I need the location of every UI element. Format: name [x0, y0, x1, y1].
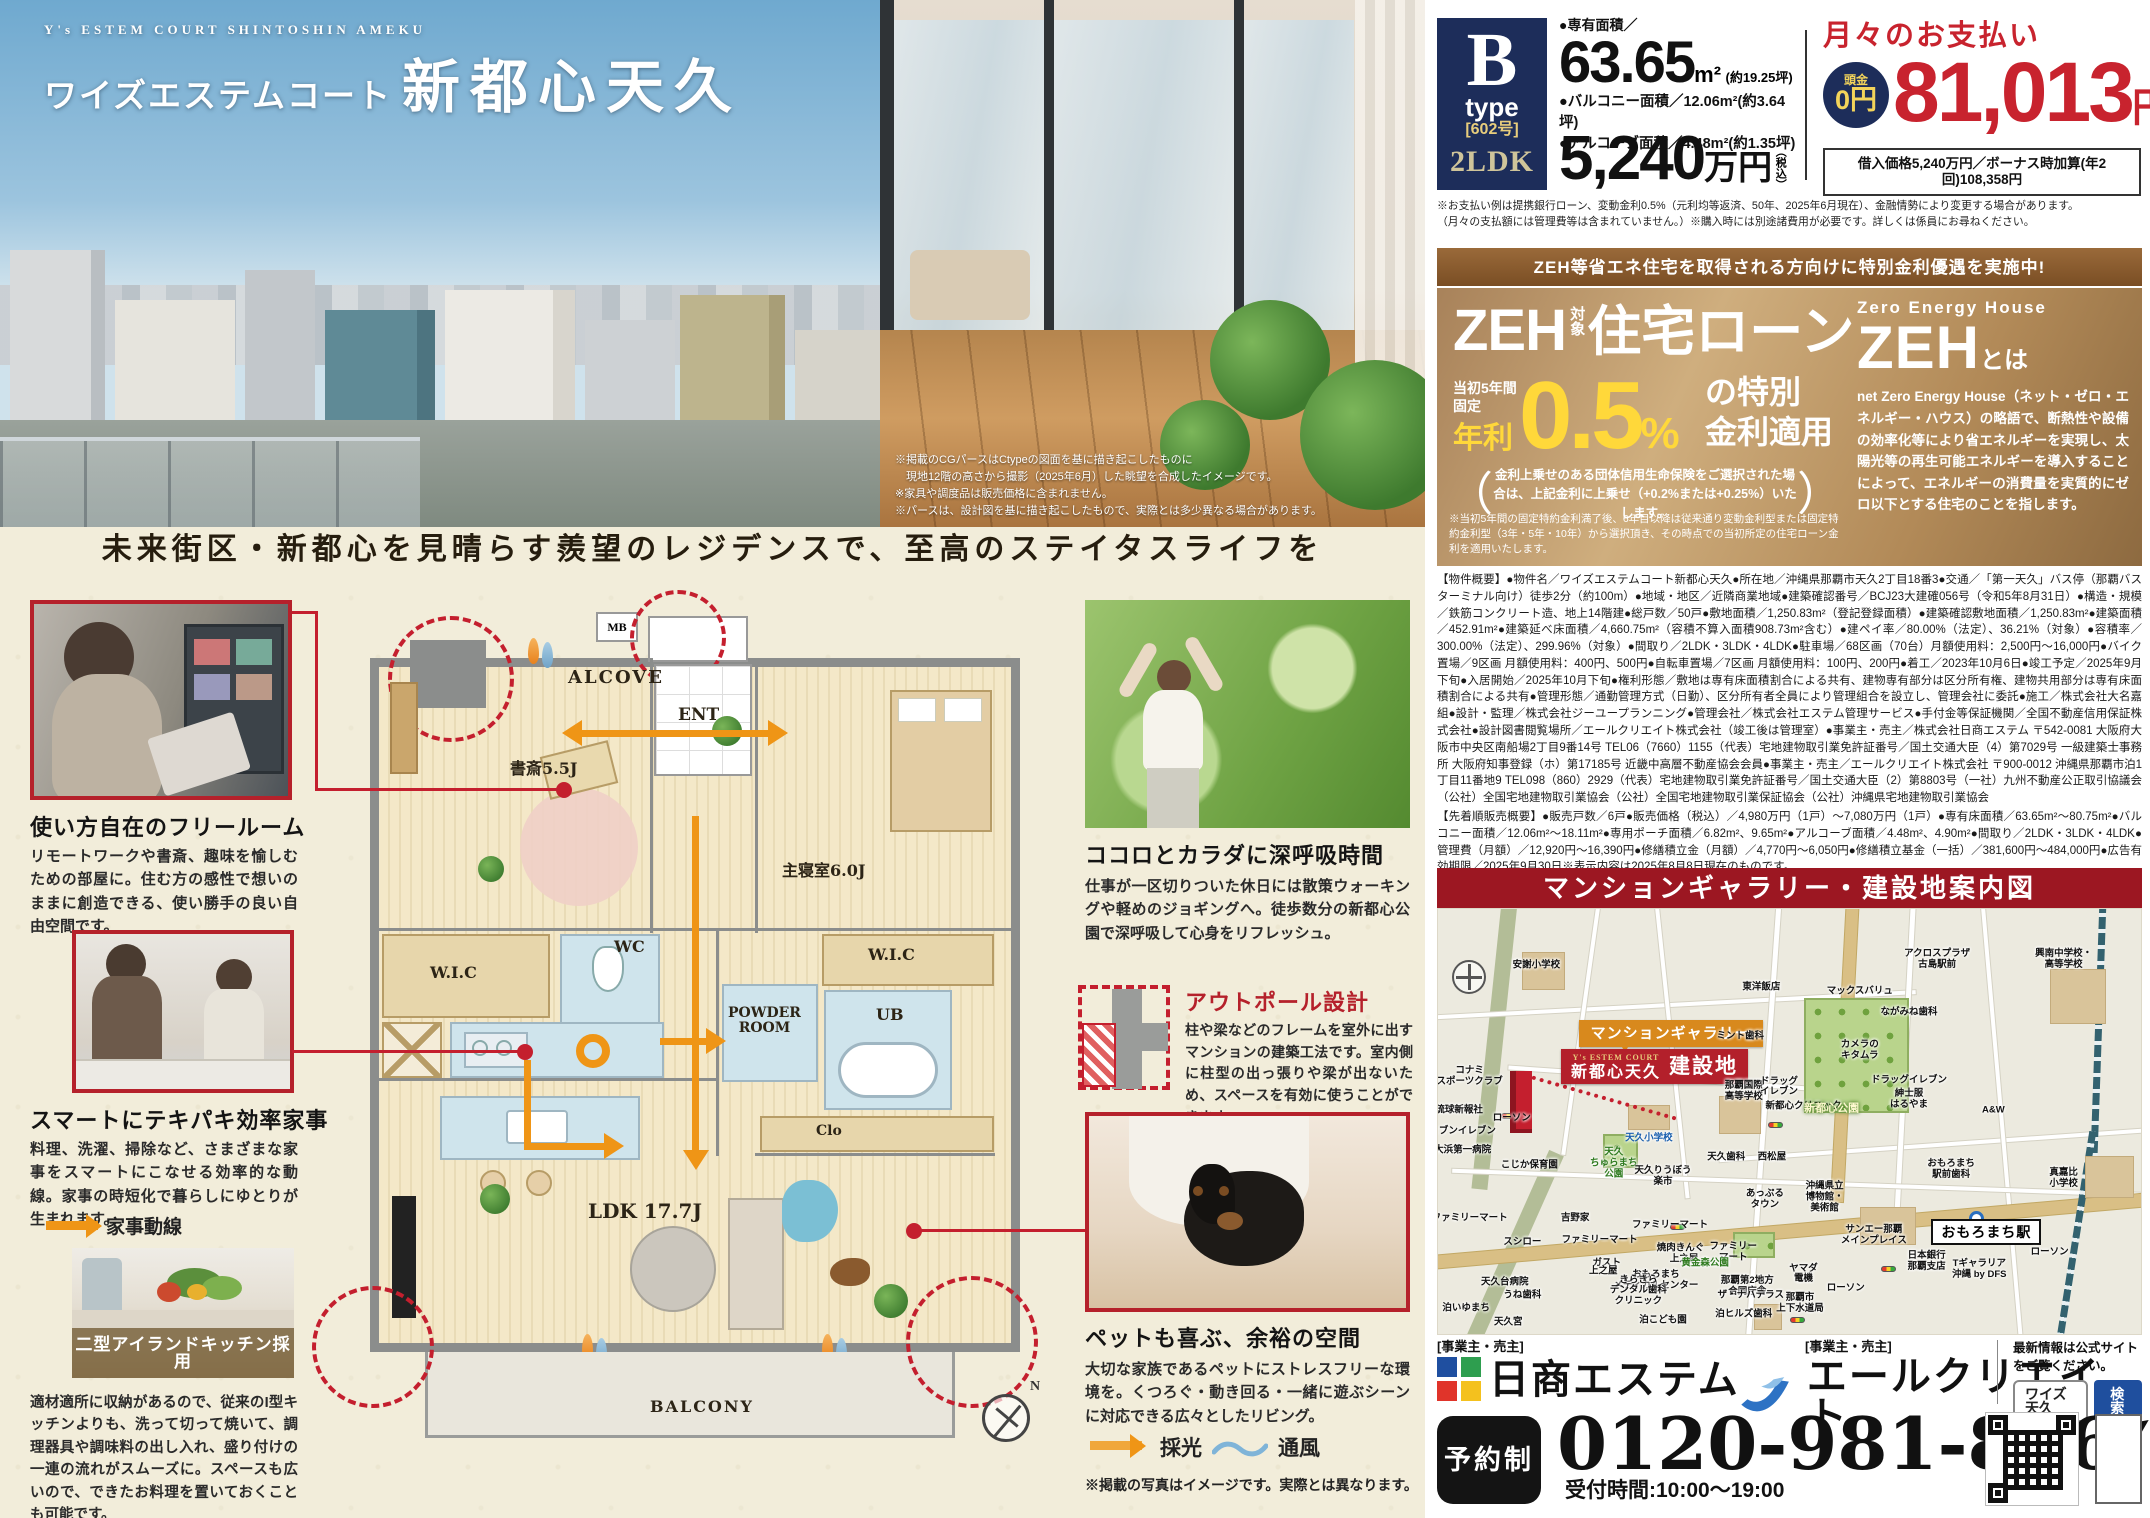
- kitchen-caption: 二型アイランドキッチン採用: [72, 1328, 294, 1378]
- company1-role: [事業主・売主]: [1437, 1340, 1740, 1353]
- blank-box: [2095, 1414, 2142, 1504]
- footer-companies: [事業主・売主] 日商エステム [事業主・売主] エールクリエイト 最新情報は公…: [1437, 1340, 2142, 1406]
- map-poi-label: 沖縄県立 博物館・ 美術館: [1806, 1182, 1844, 1215]
- feature-body-freeroom: リモートワークや書斎、趣味を愉しむための部屋に。住む方の感性で想いのままに創造で…: [30, 845, 298, 938]
- zeh-fixed-label: 当初5年間固定: [1453, 380, 1517, 415]
- map-poi-label: スシロー: [1503, 1237, 1541, 1248]
- map-poi-label: ながみね歯科: [1880, 1008, 1937, 1019]
- map-poi-label: 大浜第一病院: [1437, 1146, 1491, 1157]
- omoromachi-station-label: おもろまち駅: [1931, 1219, 2041, 1245]
- map-poi-label: Tギャラリア 沖縄 by DFS: [1952, 1259, 2006, 1281]
- wic-left-label: W.I.C: [430, 964, 477, 982]
- official-site-note: 最新情報は公式サイトをご覧ください。: [2013, 1340, 2143, 1375]
- map-poi-label: きらきら デンタル歯科 クリニック: [1610, 1275, 1667, 1308]
- type-badge: B type [602号] 2LDK: [1437, 18, 1547, 190]
- hero-photo: Y's ESTEM COURT SHINTOSHIN AMEKU ワイズエステム…: [0, 0, 1425, 527]
- map-poi-label: 琉球新報社: [1437, 1105, 1483, 1116]
- monthly-payment-block: 月々のお支払い 頭金 0円 81,013円: [1823, 22, 2138, 51]
- map-poi-label: ファミリーマート: [1632, 1220, 1708, 1231]
- kaji-legend-label: 家事動線: [106, 1217, 182, 1238]
- area-value: 63.65: [1559, 30, 1694, 95]
- light-legend-label: 採光: [1160, 1438, 1202, 1459]
- loan-note: 借入価格5,240万円／ボーナス時加算(年2回)108,358円: [1823, 148, 2141, 196]
- overview-paragraph-2: 【先着順販売概要】●販売戸数／6戸●販売価格（税込）／4,980万円（1戸）～7…: [1437, 809, 2142, 876]
- map-poi-label: 那覇国際 高等学校: [1725, 1081, 1763, 1103]
- wind-wave-icon: [1212, 1440, 1268, 1458]
- map-poi-label: マックスバリュ: [1827, 986, 1893, 997]
- map-poi-label: 天久小学校: [1625, 1133, 1673, 1144]
- map-poi-label: 泊いゆまち: [1442, 1303, 1490, 1314]
- zeh-right-title: ZEH: [1857, 314, 1980, 381]
- property-overview: 【物件概要】●物件名／ワイズエステムコート新都心天久●所在地／沖縄県那覇市天久2…: [1437, 572, 2142, 876]
- map-poi-label: 日本銀行 那覇支店: [1908, 1251, 1946, 1273]
- north-label: N: [1030, 1380, 1040, 1394]
- map-poi-label: 真嘉比 小学校: [2049, 1168, 2078, 1190]
- qr-code: [1985, 1412, 2079, 1506]
- property-title-en: Y's ESTEM COURT SHINTOSHIN AMEKU: [44, 22, 742, 38]
- zeh-rate-percent: %: [1640, 409, 1679, 458]
- nissho-logo-icon: [1437, 1357, 1481, 1401]
- map-poi-label: 天久歯科: [1707, 1152, 1745, 1163]
- dining-table: [630, 1226, 716, 1312]
- left-panel: Y's ESTEM COURT SHINTOSHIN AMEKU ワイズエステム…: [0, 0, 1425, 1518]
- kaji-legend: 家事動線: [46, 1218, 182, 1237]
- feature-photo-kitchen: 二型アイランドキッチン採用: [72, 1248, 294, 1378]
- wind-legend-label: 通風: [1278, 1438, 1320, 1459]
- light-arrow-icon: [1090, 1441, 1142, 1450]
- feature-photo-kaji: [72, 930, 294, 1093]
- bedroom-label: 主寝室6.0J: [782, 862, 865, 880]
- site-callout-name: 新都心天久: [1571, 1063, 1661, 1081]
- map-poi-label: 西松屋: [1758, 1152, 1787, 1163]
- downpayment-badge: 頭金 0円: [1823, 62, 1889, 128]
- balcony-label: BALCONY: [650, 1398, 754, 1416]
- map-poi-label: 吉野家: [1561, 1214, 1590, 1225]
- map-poi-label: ファミリーマート: [1562, 1235, 1638, 1246]
- monthly-unit: 円: [2132, 86, 2150, 130]
- map-poi-label: ヤマダ 電機: [1789, 1264, 1818, 1286]
- outpole-circle-bottom-left: [312, 1286, 434, 1408]
- feature-photo-park: [1085, 600, 1410, 828]
- map-poi-label: セブンイレブン: [1437, 1127, 1496, 1138]
- feature-title-pet: ペットも喜ぶ、余裕の空間: [1085, 1326, 1361, 1352]
- clo-label: Clo: [816, 1124, 842, 1139]
- feature-title-park: ココロとカラダに深呼吸時間: [1085, 843, 1384, 869]
- map-poi-label: 天久台病院: [1481, 1278, 1529, 1289]
- bathtub: [838, 1042, 938, 1098]
- map-compass-icon: [1452, 960, 1486, 994]
- info-panel: B type [602号] 2LDK ●専有面積／ 63.65m² (約19.2…: [1425, 0, 2150, 1518]
- feature-photo-freeroom: [30, 600, 292, 800]
- zeh-rate-rest: の特別 金利適用: [1705, 372, 1833, 452]
- downpayment-value: 0円: [1823, 86, 1889, 116]
- outpole-diagram: [1078, 985, 1170, 1090]
- map-poi-label: ザ・ナハテラス: [1718, 1290, 1784, 1301]
- reception-hours: 受付時間:10:00～19:00: [1565, 1480, 1784, 1501]
- powder-label: POWDER ROOM: [728, 1006, 801, 1037]
- dog-plan: [830, 1258, 870, 1286]
- hero-photo-disclaimer: ※掲載のCGパースはCtypeの図面を基に描き起こしたものに 現地12階の高さか…: [895, 452, 1415, 520]
- photo-disclaimer: ※掲載の写真はイメージです。実際とは異なります。: [1085, 1478, 1418, 1492]
- ldk-label: LDK 17.7J: [588, 1200, 702, 1222]
- sofa: [910, 250, 1030, 320]
- property-brand: ワイズエステムコート: [44, 69, 392, 117]
- map-poi-label: アクロスプラザ 古島駅前: [1904, 949, 1970, 971]
- map-poi-label: ローソン: [1827, 1284, 1865, 1295]
- flyer-canvas: Y's ESTEM COURT SHINTOSHIN AMEKU ワイズエステム…: [0, 0, 2150, 1518]
- payment-fine-print: ※お支払い例は提携銀行ローン、変動金利0.5%（元利均等返済、50年、2025年…: [1437, 198, 2142, 230]
- map-poi-label: こじか保育園: [1501, 1161, 1558, 1172]
- floor-plan: MB: [330, 598, 1050, 1460]
- map-poi-label: おもろまち 駅前歯科: [1927, 1159, 1975, 1181]
- type-word: type: [1437, 94, 1547, 120]
- flow-ring: [576, 1034, 610, 1068]
- map-poi-label: コナミ スポーツクラブ: [1437, 1066, 1503, 1088]
- zeh-block: ZEH対象住宅ローン 当初5年間固定 年利 0.5% の特別 金利適用 （ 金利…: [1437, 288, 2142, 566]
- alcove-label: ALCOVE: [568, 668, 664, 688]
- balcony-railing: [0, 437, 420, 527]
- map-poi-label: 東洋飯店: [1742, 982, 1780, 993]
- footer-divider: [1997, 1340, 1998, 1404]
- feature-title-freeroom: 使い方自在のフリールーム: [30, 815, 305, 841]
- closet-strip: [760, 1116, 994, 1152]
- zeh-rate-note: ※当初5年間の固定特約金利満了後、6年目以降は従来通り変動金利型または固定特約金…: [1449, 512, 1841, 558]
- type-letter: B: [1437, 24, 1547, 96]
- map-poi-label: サンエー那覇 メインプレイス: [1841, 1225, 1907, 1247]
- zeh-rate-value: 0.5: [1519, 362, 1640, 469]
- property-title: Y's ESTEM COURT SHINTOSHIN AMEKU ワイズエステム…: [44, 22, 742, 124]
- map-poi-label: 天久宮: [1494, 1318, 1523, 1329]
- feature-body-kitchen: 適材適所に収納があるので、従来のI型キッチンよりも、洗って切って焼いて、調理器具…: [30, 1392, 298, 1518]
- site-callout: Y's ESTEM COURT 新都心天久 建設地: [1561, 1049, 1748, 1084]
- site-callout-label: 建設地: [1669, 1056, 1738, 1077]
- map-poi-label: 安謝小学校: [1513, 961, 1561, 972]
- price-tax: （税込）: [1774, 146, 1786, 190]
- map-poi-label: カメラの キタムラ: [1841, 1040, 1879, 1062]
- feature-title-kaji: スマートにテキパキ効率家事: [30, 1108, 328, 1134]
- map-poi-label: ファミリーマート: [1437, 1214, 1508, 1225]
- map-poi-label: 泊こども園: [1639, 1316, 1687, 1327]
- zeh-banner: ZEH等省エネ住宅を取得される方向けに特別金利優遇を実施中!: [1437, 248, 2142, 286]
- price-block: 5,240万円（税込）: [1559, 128, 1809, 190]
- property-name: 新都心天久: [402, 40, 742, 124]
- sofa-plan: [728, 1198, 784, 1330]
- area-tsubo: (約19.25坪): [1726, 70, 1793, 85]
- overview-paragraph-1: 【物件概要】●物件名／ワイズエステムコート新都心天久●所在地／沖縄県那覇市天久2…: [1437, 572, 2142, 807]
- desk: [390, 682, 418, 774]
- feature-photo-pet: [1085, 1112, 1410, 1312]
- reservation-badge: 予約制: [1437, 1416, 1541, 1504]
- map-poi-label: あっぷる タウン: [1746, 1189, 1784, 1211]
- map-poi-label: ミント歯科: [1717, 1031, 1765, 1042]
- zeh-right-towa: とは: [1980, 347, 2028, 374]
- map-poi-label: 黄金森公園: [1681, 1258, 1729, 1269]
- ent-label: ENT: [678, 706, 719, 725]
- map-poi-label: ローソン: [1493, 1114, 1531, 1125]
- paren-close: ）: [1797, 471, 1843, 517]
- ub-label: UB: [876, 1006, 903, 1024]
- wic-right-label: W.I.C: [868, 946, 915, 964]
- zeh-title-rest: 住宅ローン: [1587, 302, 1854, 362]
- light-wind-legend: 採光 通風: [1090, 1438, 1320, 1459]
- area-unit: m²: [1694, 62, 1721, 87]
- zeh-title-taisho: 対象: [1568, 306, 1585, 336]
- zeh-title-zeh: ZEH: [1453, 298, 1566, 363]
- balcony-area: [425, 1352, 955, 1438]
- map-poi-label: 天久りうぼう 楽市: [1634, 1166, 1691, 1188]
- study-label: 書斎5.5J: [510, 760, 577, 778]
- tagline: 未来街区・新都心を見晴らす羨望のレジデンスで、至高のステイタスライフを: [0, 527, 1425, 573]
- sink: [506, 1110, 568, 1144]
- area-map: マンションギャラリー Y's ESTEM COURT 新都心天久 建設地 おもろ…: [1437, 908, 2142, 1335]
- feature-title-outpole: アウトポール設計: [1185, 990, 1369, 1016]
- feature-body-park: 仕事が一区切りついた休日には散策ウォーキングや軽めのジョギングへ。徒歩数分の新都…: [1085, 875, 1410, 945]
- map-poi-label: 新都心公園: [1804, 1102, 1859, 1115]
- layout-label: 2LDK: [1437, 141, 1547, 183]
- map-header: マンションギャラリー・建設地案内図: [1437, 868, 2142, 908]
- curtain: [1355, 0, 1425, 420]
- map-poi-label: ドラッグ イレブン: [1760, 1077, 1798, 1099]
- monthly-value: 81,013: [1893, 45, 2132, 139]
- wc-label: WC: [614, 938, 645, 956]
- map-poi-label: ローソン: [2031, 1248, 2069, 1259]
- price-value: 5,240: [1559, 124, 1704, 193]
- price-unit: 万円: [1704, 149, 1772, 187]
- map-poi-label: 興南中学校・ 高等学校: [2035, 949, 2092, 971]
- zeh-nenri-label: 年利: [1453, 424, 1513, 454]
- paren-open: （: [1447, 471, 1493, 517]
- map-poi-label: ドラッグイレブン: [1871, 1076, 1947, 1087]
- map-poi-label: A&W: [1982, 1105, 2005, 1116]
- map-poi-label: うね歯科: [1503, 1290, 1541, 1301]
- study-rug: [520, 788, 638, 906]
- unit-number: [602号]: [1437, 120, 1547, 141]
- balcony-interior: [880, 0, 1425, 527]
- map-poi-label: 泊ヒルズ歯科: [1715, 1309, 1772, 1320]
- map-poi-label: 那覇市 上下水道局: [1776, 1293, 1824, 1315]
- company1-name: 日商エステム: [1437, 1357, 1740, 1401]
- map-poi-label: 天久 ちゅらまち 公園: [1590, 1148, 1638, 1181]
- outpole-circle-bottom-right: [906, 1276, 1038, 1408]
- compass-icon: [982, 1394, 1030, 1442]
- contact-row: 予約制 0120-981-826 受付時間:10:00～19:00: [1437, 1412, 2142, 1512]
- map-poi-label: 紳士服 はるやま: [1890, 1089, 1928, 1111]
- kaji-arrow-icon: [46, 1221, 98, 1230]
- zeh-description: net Zero Energy House（ネット・ゼロ・エネルギー・ハウス）の…: [1857, 386, 2129, 516]
- feature-body-pet: 大切な家族であるペットにストレスフリーな環境を。くつろぐ・動き回る・一緒に遊ぶシ…: [1085, 1358, 1410, 1428]
- divider: [1805, 30, 1807, 180]
